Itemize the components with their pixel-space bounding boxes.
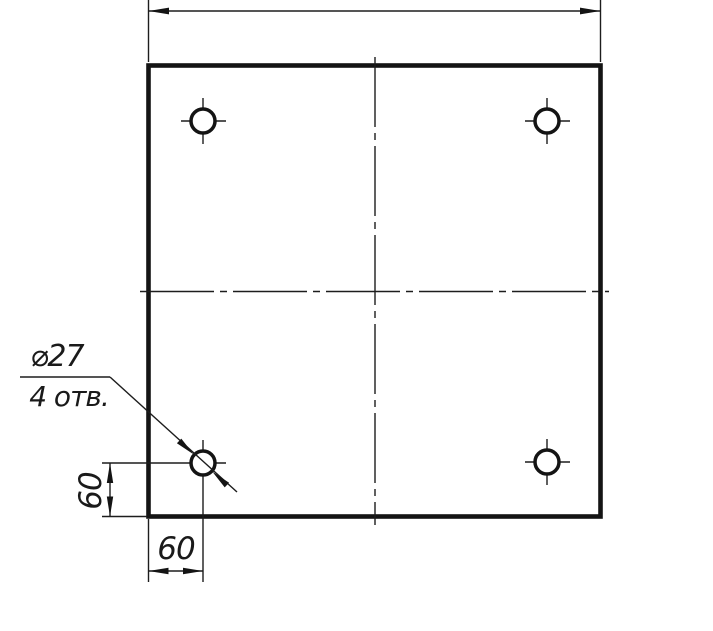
horizontal-dim-arrow-left-icon	[149, 568, 169, 574]
top-dim-arrow-right-icon	[580, 8, 601, 15]
callout-diameter-label: ⌀27	[30, 339, 84, 374]
callout-count-label: 4 отв.	[29, 380, 109, 413]
drawing-sheet: 60 60 ⌀27 4 отв.	[0, 0, 713, 631]
hole-bottom-left-circle	[191, 451, 215, 475]
horizontal-dim-label: 60	[157, 531, 195, 567]
hole-top-left-circle	[191, 109, 215, 133]
technical-drawing: 60 60 ⌀27 4 отв.	[0, 0, 713, 631]
vertical-dimension-60: 60	[73, 463, 147, 517]
hole-top-right-circle	[535, 109, 559, 133]
vertical-dim-label: 60	[73, 472, 109, 510]
horizontal-dim-arrow-right-icon	[183, 568, 203, 574]
horizontal-dimension-60: 60	[149, 519, 204, 582]
hole-bottom-right-circle	[535, 450, 559, 474]
top-dimension	[149, 0, 601, 62]
top-dim-arrow-left-icon	[149, 8, 170, 15]
